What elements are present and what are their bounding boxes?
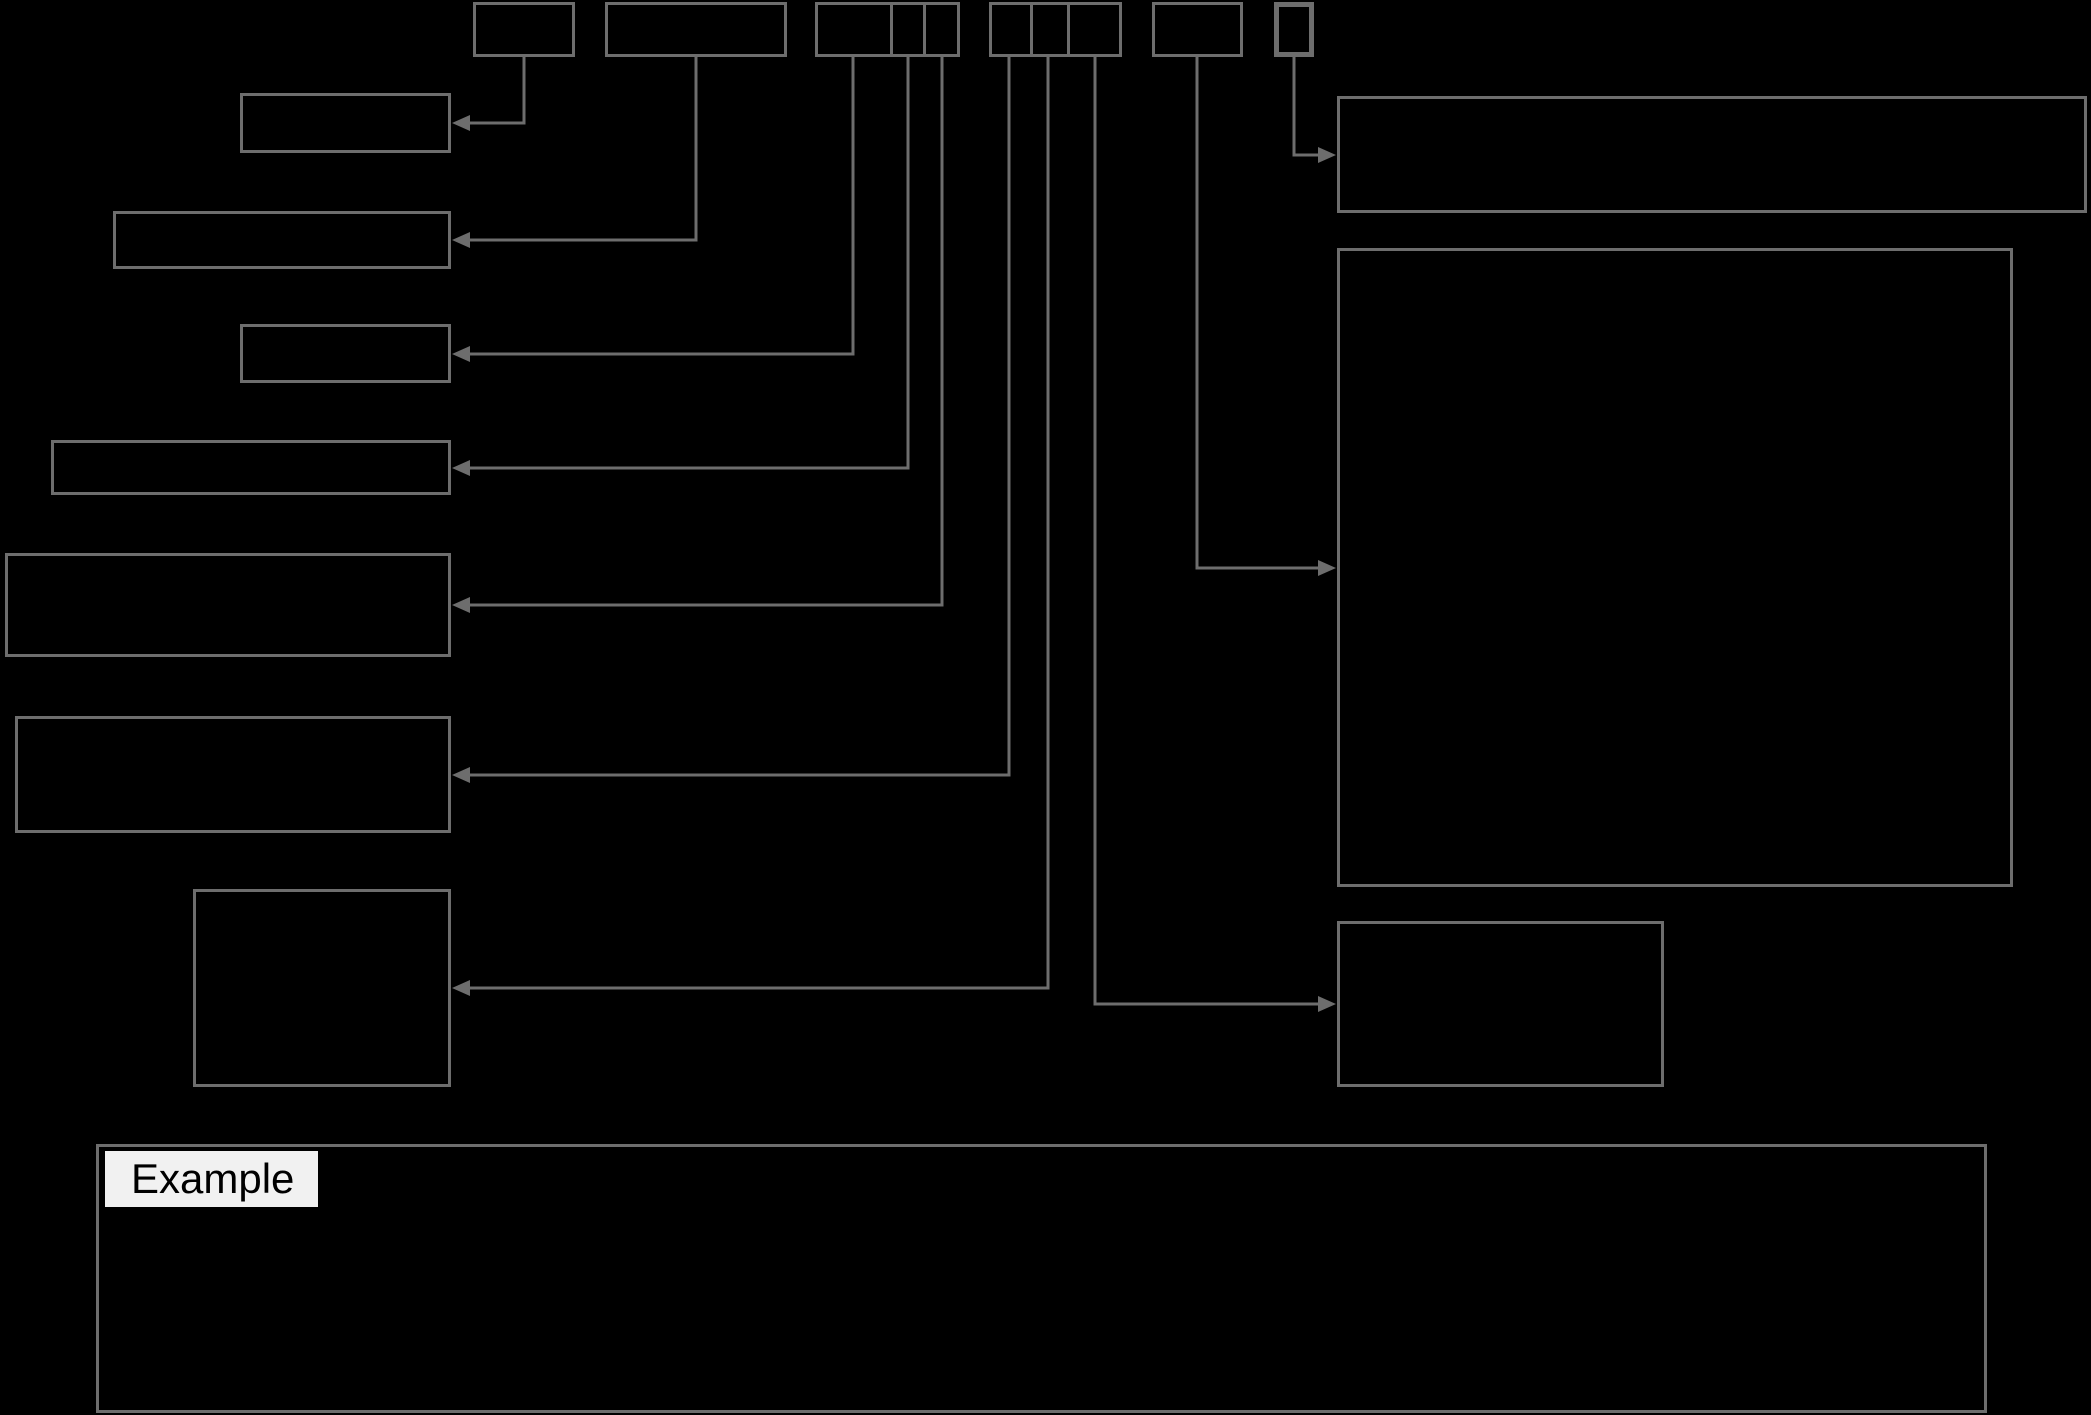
top-segment-group-4: [989, 2, 1122, 57]
right-panel-large: [1337, 248, 2013, 887]
arrowhead-left6: [452, 767, 470, 783]
connector-segment3c3-to-left5: [469, 57, 942, 605]
example-box: Example: [96, 1144, 1987, 1413]
left-callout-box-1: [240, 93, 451, 153]
left-callout-box-5: [5, 553, 451, 657]
right-panel-small: [1337, 921, 1664, 1087]
top-segment-3-cell-2: [890, 5, 924, 54]
top-segment-3-cell-1: [818, 5, 890, 54]
connector-segment4c2-to-left7: [469, 57, 1048, 988]
arrowhead-right-large: [1318, 560, 1336, 576]
arrowhead-left3: [452, 346, 470, 362]
arrowhead-left2: [452, 232, 470, 248]
connector-segment2-to-left2: [469, 57, 696, 240]
connector-segment4c3-to-right-small: [1095, 57, 1319, 1004]
diagram-canvas: Example: [0, 0, 2091, 1415]
right-panel-top: [1337, 96, 2087, 213]
example-label: Example: [131, 1155, 294, 1202]
connector-segment4c1-to-left6: [469, 57, 1009, 775]
connector-segment5-to-right-large: [1197, 57, 1319, 568]
top-segment-2: [605, 2, 787, 57]
connector-segment3c2-to-left4: [469, 57, 908, 468]
top-segment-3-cell-3: [923, 5, 957, 54]
top-segment-4-cell-3: [1067, 5, 1119, 54]
connector-segment6-to-right-top: [1294, 57, 1319, 155]
arrowhead-right-small: [1318, 996, 1336, 1012]
connector-segment3c1-to-left3: [469, 57, 853, 354]
top-segment-4-cell-2: [1030, 5, 1067, 54]
left-callout-box-2: [113, 211, 451, 269]
left-callout-box-7: [193, 889, 451, 1087]
arrowhead-right-top: [1318, 147, 1336, 163]
top-segment-6: [1274, 2, 1314, 57]
top-segment-group-3: [815, 2, 960, 57]
arrowhead-left4: [452, 460, 470, 476]
arrowhead-left1: [452, 115, 470, 131]
left-callout-box-4: [51, 440, 451, 495]
connector-segment1-to-left1: [469, 57, 524, 123]
top-segment-5: [1152, 2, 1243, 57]
example-label-chip: Example: [105, 1151, 318, 1207]
arrowhead-left5: [452, 597, 470, 613]
arrowhead-left7: [452, 980, 470, 996]
top-segment-4-cell-1: [992, 5, 1030, 54]
left-callout-box-6: [15, 716, 451, 833]
left-callout-box-3: [240, 324, 451, 383]
top-segment-1: [473, 2, 575, 57]
